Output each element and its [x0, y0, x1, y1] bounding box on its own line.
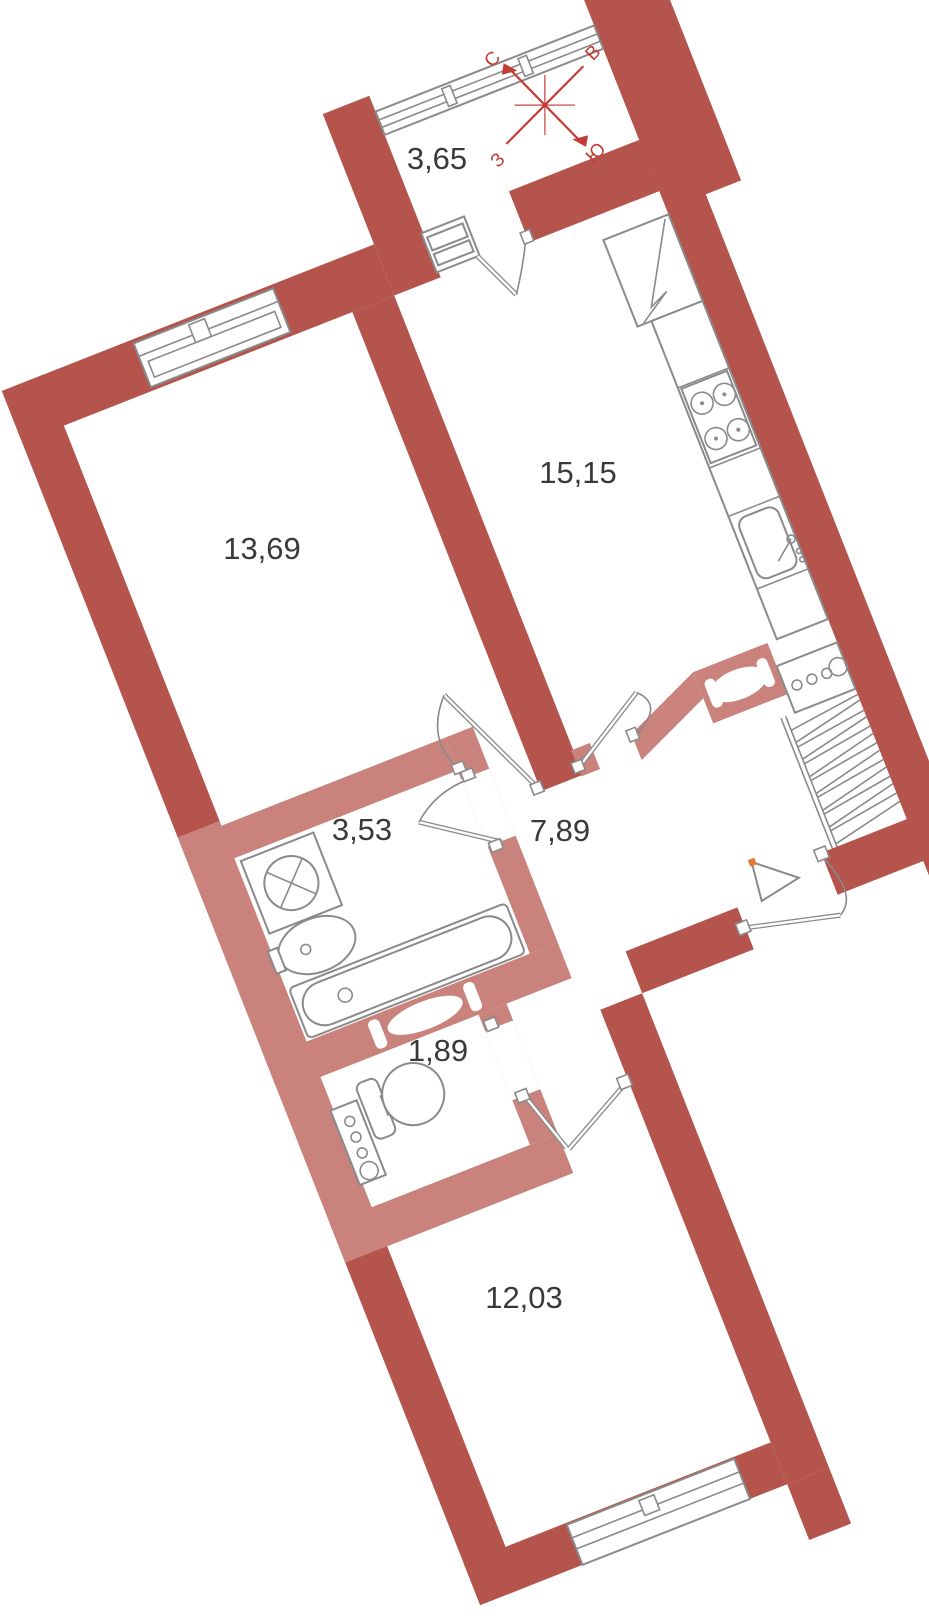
bedroom-window	[567, 1459, 750, 1565]
compass-letter-west: З	[487, 149, 510, 172]
room-area-label-kitchen: 15,15	[539, 455, 617, 490]
room-area-label-hallway: 7,89	[530, 813, 590, 848]
entrance-marker	[746, 845, 802, 901]
plan-rotated-layer: С В З Ю	[0, 0, 929, 1621]
room-area-label-wc: 1,89	[408, 1033, 468, 1068]
room-area-label-bathroom: 3,53	[332, 812, 392, 847]
floor-plan-page: С В З Ю 3,65 15,15 13,69 3,53 7,89 1,89 …	[0, 0, 929, 1621]
entrance-marker-accent	[748, 858, 757, 867]
room-area-label-living-room: 13,69	[223, 531, 301, 566]
room-area-label-balcony: 3,65	[407, 141, 467, 176]
floor-plan: С В З Ю 3,65 15,15 13,69 3,53 7,89 1,89 …	[0, 0, 929, 1621]
bedroom-door	[552, 1074, 646, 1149]
living-room-window	[134, 288, 291, 387]
wc-door-opening	[485, 1020, 540, 1100]
room-area-label-bedroom: 12,03	[485, 1280, 563, 1315]
